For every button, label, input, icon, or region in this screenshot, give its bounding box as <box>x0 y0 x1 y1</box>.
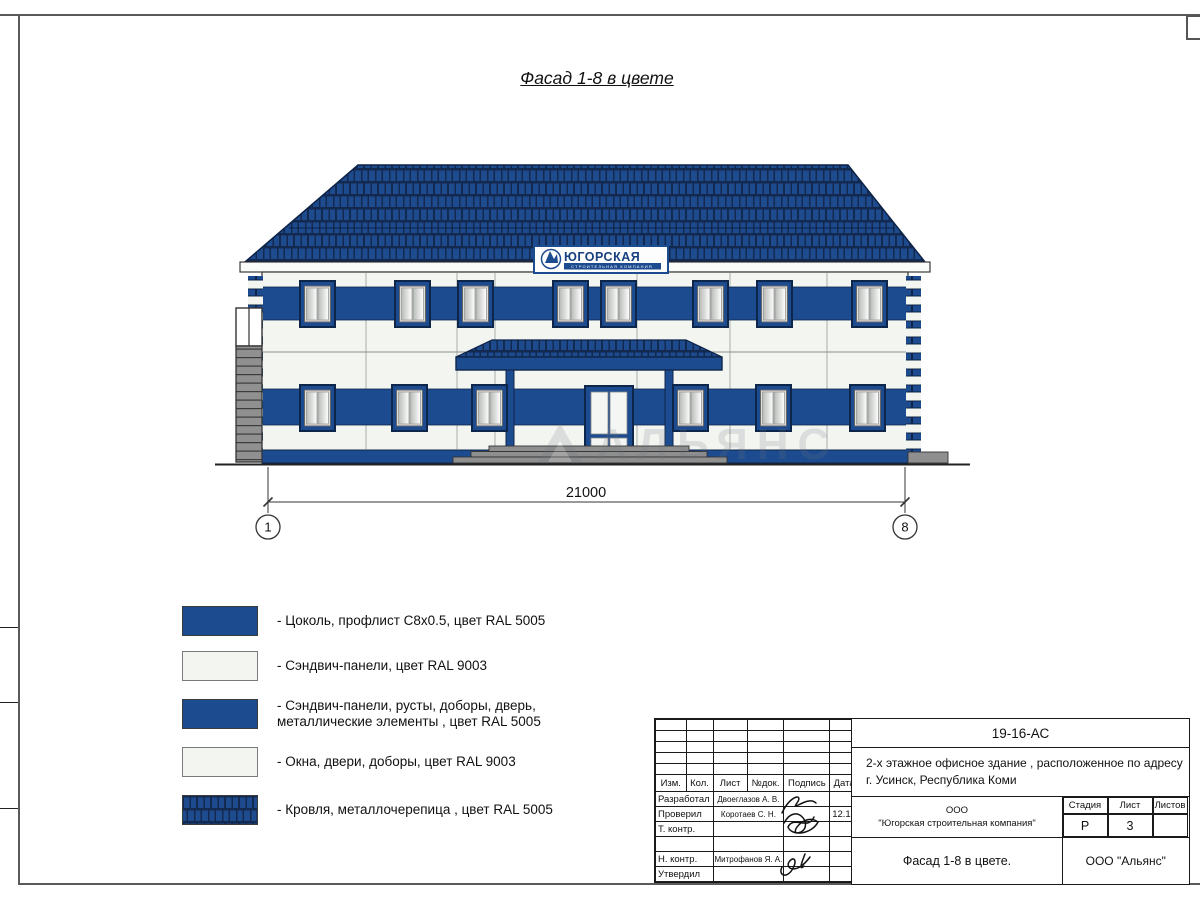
axis-marker-1: 1 <box>256 515 280 539</box>
legend-item: - Кровля, металлочерепица , цвет RAL 500… <box>182 795 553 825</box>
titleblock-row: Проверил Коротаев С. Н. 12.16 <box>655 807 859 822</box>
window <box>395 281 430 327</box>
legend-swatch-blue <box>182 606 258 636</box>
legend-item: - Цоколь, профлист С8х0.5, цвет RAL 5005 <box>182 606 545 636</box>
titleblock-row: Разработал Двоеглазов А. В. <box>655 792 859 807</box>
titleblock-doc-number: 19-16-АС <box>851 718 1190 748</box>
fold-mark <box>0 702 18 703</box>
window <box>693 281 728 327</box>
legend-item: - Окна, двери, доборы, цвет RAL 9003 <box>182 747 516 777</box>
legend-swatch-white <box>182 651 258 681</box>
titleblock-company: ООО "Югорская строительная компания" <box>851 796 1063 838</box>
legend-label: - Цоколь, профлист С8х0.5, цвет RAL 5005 <box>277 613 545 629</box>
window <box>553 281 588 327</box>
signature-scribbles <box>774 791 822 883</box>
sheet-value: 3 <box>1108 814 1153 837</box>
window <box>300 281 335 327</box>
fold-mark <box>0 627 18 628</box>
window <box>472 385 507 431</box>
window <box>392 385 427 431</box>
legend-label: - Кровля, металлочерепица , цвет RAL 500… <box>277 802 553 818</box>
stage-label: Стадия <box>1063 797 1108 814</box>
titleblock-row <box>655 837 859 852</box>
window <box>852 281 887 327</box>
stage-value: Р <box>1063 814 1108 837</box>
legend-swatch-white <box>182 747 258 777</box>
legend-swatch-blue <box>182 699 258 729</box>
titleblock-header-row: Изм.Кол. Лист№док. ПодписьДата <box>655 775 859 792</box>
sheet-label: Лист <box>1108 797 1153 814</box>
axis-marker-8: 8 <box>893 515 917 539</box>
titleblock-signature-table: Изм.Кол. Лист№док. ПодписьДата Разработа… <box>654 718 860 883</box>
sheets-value <box>1153 814 1188 837</box>
titleblock-drawing-title: Фасад 1-8 в цвете. <box>851 837 1063 885</box>
svg-text:АЛЬЯНС: АЛЬЯНС <box>596 420 838 469</box>
legend-item: - Сэндвич-панели, цвет RAL 9003 <box>182 651 487 681</box>
window <box>300 385 335 431</box>
exterior-stair <box>236 308 262 462</box>
legend-label: - Сэндвич-панели, русты, доборы, дверь, … <box>277 698 541 730</box>
window <box>601 281 636 327</box>
rusts-right <box>906 276 921 452</box>
legend-swatch-roof <box>182 795 258 825</box>
svg-text:8: 8 <box>901 520 908 535</box>
window <box>850 385 885 431</box>
titleblock-row: Н. контр. Митрофанов Я. А. <box>655 852 859 867</box>
sign-title: ЮГОРСКАЯ <box>564 250 640 264</box>
fold-mark <box>0 808 18 809</box>
window <box>458 281 493 327</box>
sheets-label: Листов <box>1153 797 1188 814</box>
window <box>757 281 792 327</box>
dimension-value: 21000 <box>566 485 606 501</box>
titleblock-project: 2-х этажное офисное здание , расположенн… <box>851 747 1190 798</box>
legend-label: - Окна, двери, доборы, цвет RAL 9003 <box>277 754 516 770</box>
side-ramp <box>908 452 948 463</box>
titleblock-row: Утвердил <box>655 867 859 883</box>
sign-board: ЮГОРСКАЯ СТРОИТЕЛЬНАЯ КОМПАНИЯ <box>534 246 668 273</box>
facade-drawing: ЮГОРСКАЯ СТРОИТЕЛЬНАЯ КОМПАНИЯ АЛЬЯНС 21… <box>0 0 1200 560</box>
drawing-sheet: { "page": { "title": "Фасад 1-8 в цвете"… <box>0 0 1200 900</box>
legend-label: - Сэндвич-панели, цвет RAL 9003 <box>277 658 487 674</box>
sign-subtitle: СТРОИТЕЛЬНАЯ КОМПАНИЯ <box>571 264 653 269</box>
titleblock-stage-grid: Стадия Лист Листов Р 3 <box>1062 796 1191 838</box>
svg-text:1: 1 <box>264 520 271 535</box>
titleblock-row: Т. контр. <box>655 822 859 837</box>
titleblock-org: ООО "Альянс" <box>1062 837 1191 885</box>
legend-item: - Сэндвич-панели, русты, доборы, дверь, … <box>182 698 541 730</box>
